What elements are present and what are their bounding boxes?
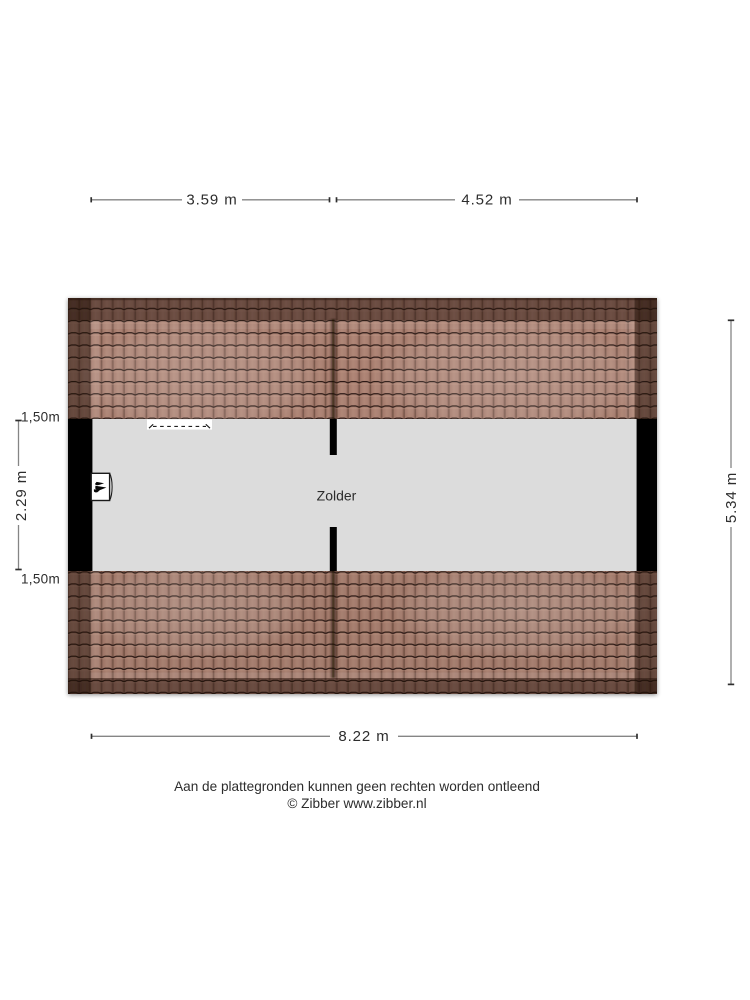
svg-text:1,50m: 1,50m (21, 572, 60, 587)
svg-text:© Zibber www.zibber.nl: © Zibber www.zibber.nl (287, 796, 426, 811)
svg-text:1,50m: 1,50m (21, 410, 60, 425)
svg-text:5.34 m: 5.34 m (723, 472, 740, 523)
svg-text:Aan de plattegronden kunnen ge: Aan de plattegronden kunnen geen rechten… (174, 779, 540, 794)
svg-text:Zolder: Zolder (317, 488, 357, 504)
svg-text:3.59 m: 3.59 m (186, 192, 237, 209)
svg-text:8.22 m: 8.22 m (338, 728, 389, 745)
svg-text:2.29 m: 2.29 m (13, 470, 30, 521)
svg-text:4.52 m: 4.52 m (461, 192, 512, 209)
